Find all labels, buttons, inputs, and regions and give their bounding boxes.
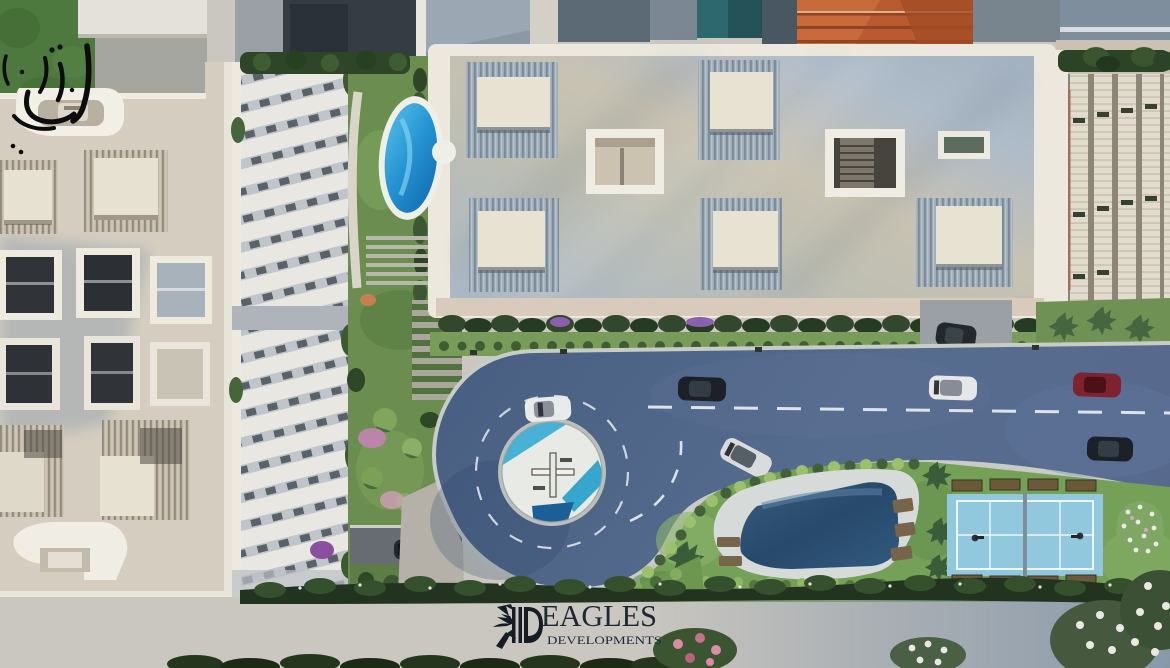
- svg-text:DEVELOPMENTS: DEVELOPMENTS: [547, 635, 662, 647]
- svg-text:EAGLES: EAGLES: [541, 598, 657, 633]
